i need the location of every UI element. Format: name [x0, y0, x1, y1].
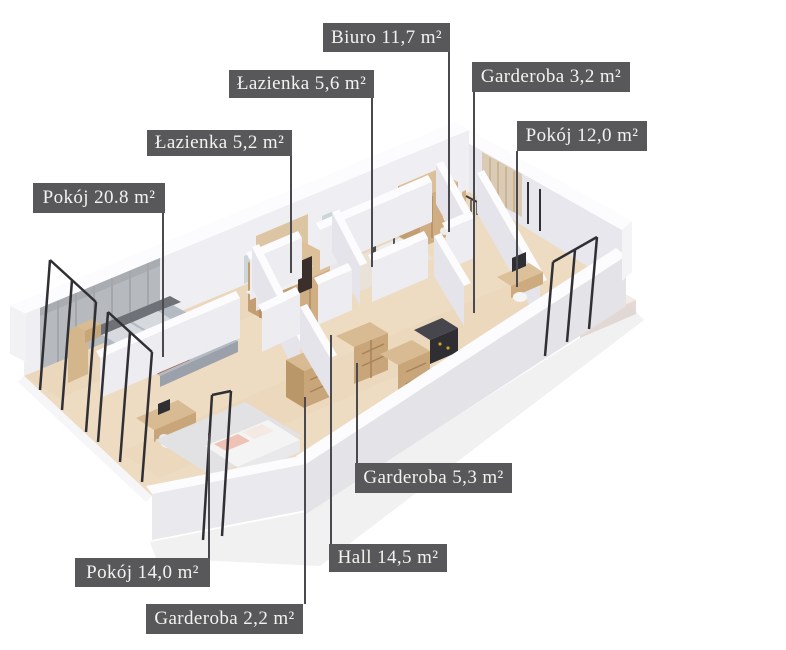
room-label-pokoj-14-0: Pokój 14,0 m²	[75, 558, 210, 587]
room-label-lazienka-5-2: Łazienka 5,2 m²	[147, 130, 292, 156]
room-label-hall-14-5: Hall 14,5 m²	[329, 544, 447, 572]
floorplan-canvas: Biuro 11,7 m² Łazienka 5,6 m² Garderoba …	[0, 0, 786, 650]
room-label-garderoba-3-2: Garderoba 3,2 m²	[472, 62, 630, 92]
room-label-garderoba-2-2: Garderoba 2,2 m²	[146, 604, 303, 634]
room-label-lazienka-5-6: Łazienka 5,6 m²	[229, 70, 374, 98]
room-label-pokoj-12-0: Pokój 12,0 m²	[517, 121, 647, 151]
room-label-biuro: Biuro 11,7 m²	[323, 23, 450, 52]
room-label-pokoj-20-8: Pokój 20.8 m²	[33, 183, 165, 213]
room-label-garderoba-5-3: Garderoba 5,3 m²	[355, 463, 512, 493]
